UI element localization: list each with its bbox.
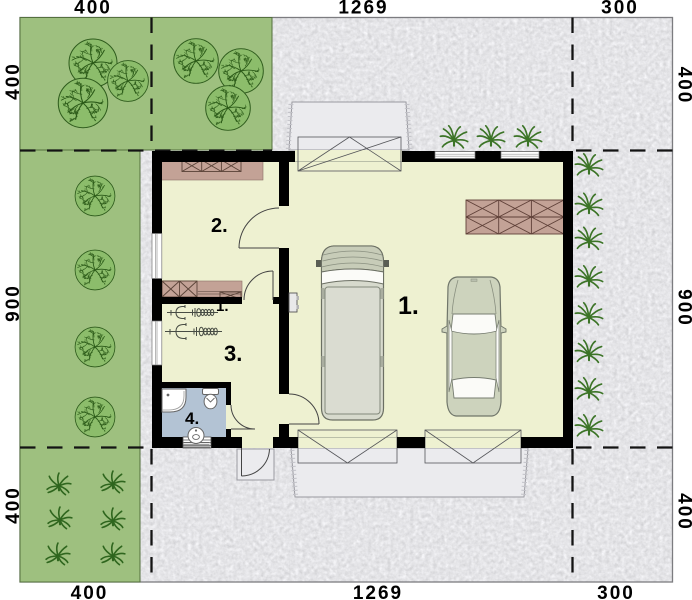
svg-text:900: 900: [674, 289, 692, 327]
svg-text:400: 400: [674, 493, 692, 531]
svg-text:300: 300: [597, 583, 635, 600]
svg-text:2.: 2.: [211, 215, 228, 237]
svg-text:1.: 1.: [216, 298, 229, 315]
svg-text:400: 400: [674, 67, 692, 105]
svg-text:1269: 1269: [353, 583, 403, 600]
svg-text:400: 400: [3, 62, 24, 100]
svg-text:1269: 1269: [338, 0, 388, 19]
svg-text:400: 400: [71, 583, 109, 600]
svg-text:900: 900: [3, 284, 24, 322]
svg-text:1.: 1.: [398, 292, 419, 320]
svg-text:3.: 3.: [224, 341, 242, 366]
svg-text:4.: 4.: [185, 409, 199, 428]
svg-text:300: 300: [601, 0, 639, 19]
svg-text:400: 400: [3, 486, 24, 524]
svg-text:400: 400: [74, 0, 112, 19]
